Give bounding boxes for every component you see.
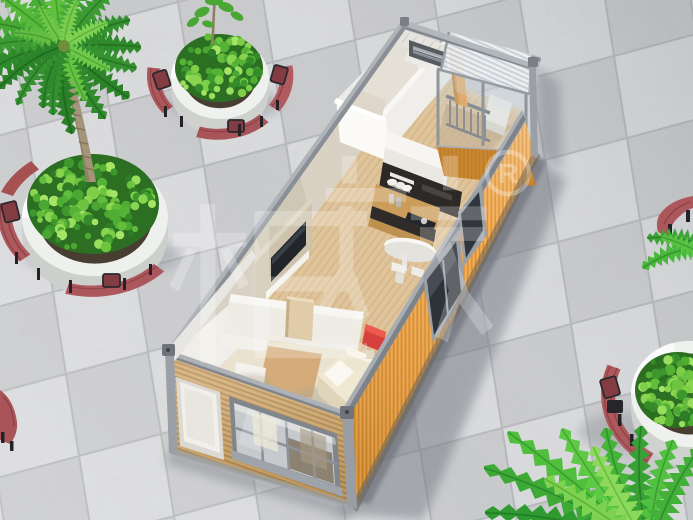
- svg-text:R: R: [498, 158, 518, 189]
